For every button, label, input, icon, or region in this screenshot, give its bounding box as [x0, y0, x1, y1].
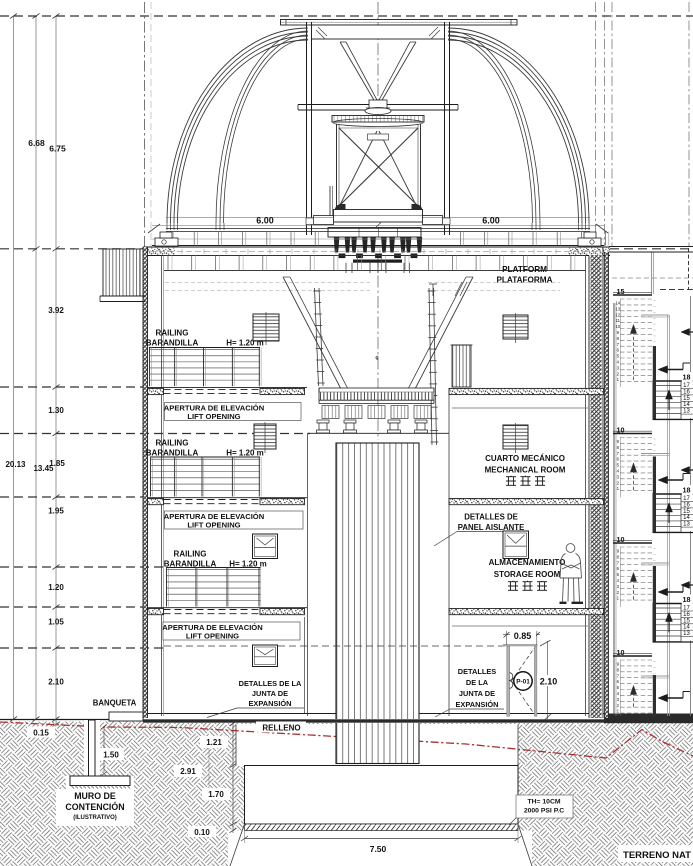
svg-text:RELLENO: RELLENO — [262, 724, 300, 733]
svg-text:10: 10 — [617, 648, 625, 657]
svg-text:17: 17 — [683, 496, 690, 502]
svg-text:7.50: 7.50 — [370, 844, 387, 854]
svg-text:3.92: 3.92 — [48, 306, 64, 315]
svg-text:1.50: 1.50 — [103, 751, 119, 760]
svg-text:6.68: 6.68 — [28, 138, 45, 148]
svg-text:JUNTA DE: JUNTA DE — [459, 689, 495, 698]
svg-text:2000 PSI P.C: 2000 PSI P.C — [524, 808, 564, 815]
svg-text:MURO DE: MURO DE — [74, 791, 116, 801]
svg-text:JUNTA DE: JUNTA DE — [252, 689, 288, 698]
svg-text:DETALLES: DETALLES — [458, 667, 497, 676]
svg-text:16: 16 — [683, 612, 690, 618]
svg-text:14: 14 — [683, 402, 690, 408]
svg-text:0.85: 0.85 — [514, 631, 532, 641]
svg-text:0.10: 0.10 — [194, 828, 210, 837]
svg-text:1.21: 1.21 — [206, 738, 222, 747]
svg-text:P-01: P-01 — [516, 678, 530, 685]
svg-text:2.10: 2.10 — [48, 678, 64, 687]
svg-text:EXPANSIÓN: EXPANSIÓN — [456, 700, 499, 709]
svg-text:2.10: 2.10 — [540, 676, 558, 686]
svg-text:PLATFORM: PLATFORM — [502, 265, 547, 274]
svg-text:15: 15 — [683, 618, 690, 624]
svg-text:TERRENO NAT: TERRENO NAT — [623, 850, 691, 861]
svg-text:20.13: 20.13 — [5, 460, 26, 469]
svg-text:1.95: 1.95 — [48, 507, 64, 516]
svg-text:17: 17 — [683, 606, 690, 612]
svg-text:13: 13 — [615, 306, 620, 311]
svg-text:18: 18 — [683, 595, 691, 604]
svg-text:TH= 10CM: TH= 10CM — [527, 799, 560, 806]
svg-text:MECHANICAL ROOM: MECHANICAL ROOM — [485, 466, 566, 475]
svg-text:EXPANSIÓN: EXPANSIÓN — [249, 699, 292, 708]
svg-text:1.05: 1.05 — [48, 618, 64, 627]
svg-text:CONTENCIÓN: CONTENCIÓN — [65, 801, 124, 812]
svg-text:H= 1.20 m: H= 1.20 m — [226, 449, 264, 458]
svg-text:DETALLES DE: DETALLES DE — [464, 513, 518, 522]
svg-text:DETALLES DE LA: DETALLES DE LA — [239, 679, 302, 688]
svg-text:10: 10 — [615, 324, 620, 329]
svg-text:PLATAFORMA: PLATAFORMA — [496, 276, 552, 285]
svg-text:BARANDILLA: BARANDILLA — [146, 449, 199, 458]
svg-text:17: 17 — [683, 383, 690, 389]
svg-text:16: 16 — [683, 389, 690, 395]
svg-text:14: 14 — [683, 625, 690, 631]
svg-text:11: 11 — [616, 318, 621, 323]
svg-text:1.85: 1.85 — [49, 459, 65, 468]
svg-text:RAILING: RAILING — [156, 439, 189, 448]
svg-text:10: 10 — [617, 535, 625, 544]
svg-text:ALMACENAMIENTO: ALMACENAMIENTO — [489, 558, 566, 567]
svg-text:18: 18 — [683, 486, 691, 495]
svg-text:14: 14 — [615, 301, 620, 306]
svg-text:14: 14 — [683, 515, 690, 521]
svg-text:BARANDILLA: BARANDILLA — [146, 339, 199, 348]
svg-text:RAILING: RAILING — [174, 550, 207, 559]
svg-text:13: 13 — [683, 522, 690, 528]
svg-text:10: 10 — [617, 426, 625, 435]
svg-text:CUARTO MECÁNICO: CUARTO MECÁNICO — [485, 454, 565, 463]
svg-text:13: 13 — [683, 409, 690, 415]
svg-text:1.30: 1.30 — [48, 406, 64, 415]
svg-text:13: 13 — [683, 631, 690, 637]
svg-text:LIFT OPENING: LIFT OPENING — [187, 521, 240, 530]
svg-text:6.00: 6.00 — [256, 216, 274, 226]
svg-text:DE LA: DE LA — [466, 678, 489, 687]
svg-text:15: 15 — [683, 509, 690, 515]
svg-text:1.70: 1.70 — [208, 790, 224, 799]
svg-text:(ILUSTRATIVO): (ILUSTRATIVO) — [73, 815, 117, 821]
svg-text:STORAGE ROOM: STORAGE ROOM — [494, 570, 561, 579]
svg-text:16: 16 — [683, 502, 690, 508]
svg-text:LIFT OPENING: LIFT OPENING — [186, 632, 239, 641]
svg-text:2.91: 2.91 — [180, 767, 196, 776]
svg-text:6.75: 6.75 — [49, 144, 66, 154]
svg-text:12: 12 — [615, 312, 620, 317]
svg-text:18: 18 — [683, 373, 691, 382]
svg-text:LIFT OPENING: LIFT OPENING — [187, 412, 240, 421]
svg-text:1.20: 1.20 — [48, 583, 64, 592]
svg-text:15: 15 — [683, 396, 690, 402]
svg-text:BANQUETA: BANQUETA — [93, 699, 137, 708]
svg-text:15: 15 — [617, 287, 625, 296]
svg-text:6.00: 6.00 — [482, 216, 500, 226]
svg-text:0.15: 0.15 — [33, 729, 49, 738]
svg-text:RAILING: RAILING — [156, 329, 189, 338]
